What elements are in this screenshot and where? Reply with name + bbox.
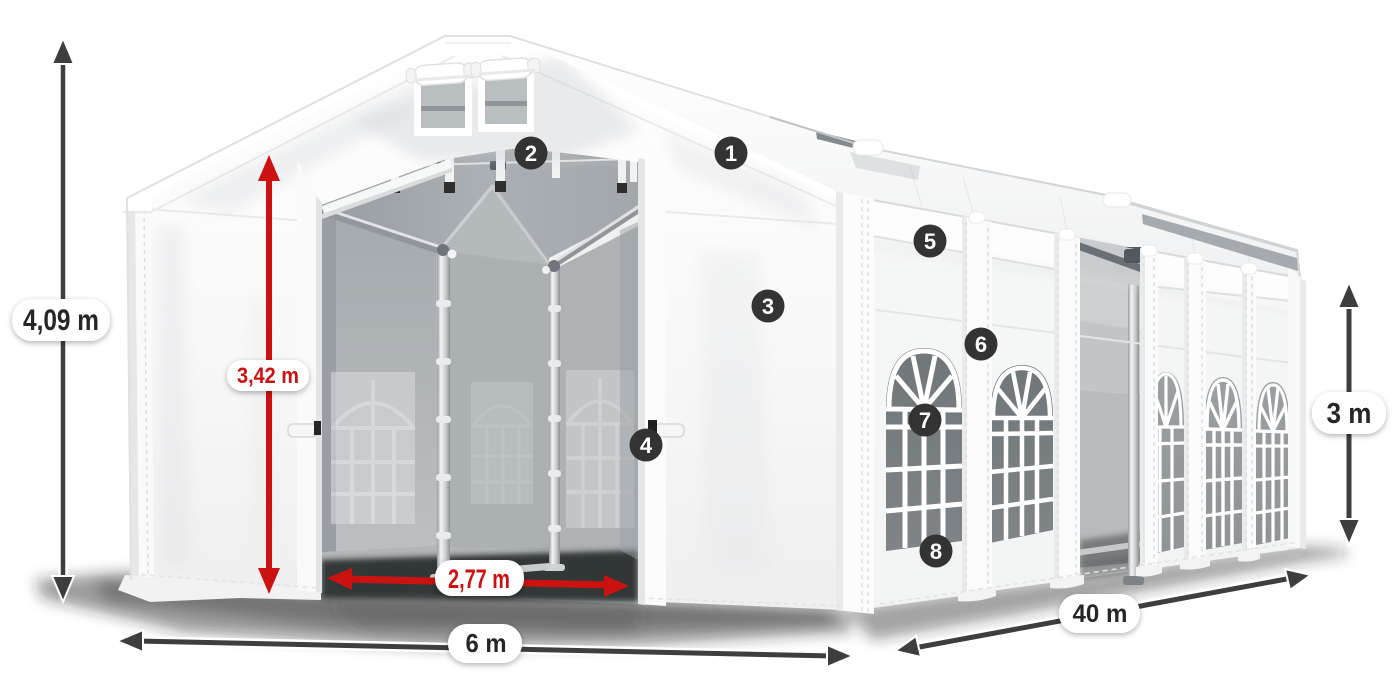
svg-text:6 m: 6 m xyxy=(466,628,507,658)
svg-text:3 m: 3 m xyxy=(1327,398,1372,430)
svg-text:8: 8 xyxy=(930,539,942,564)
svg-text:3: 3 xyxy=(762,294,774,319)
svg-text:7: 7 xyxy=(919,408,931,433)
svg-text:1: 1 xyxy=(725,141,737,166)
svg-text:2: 2 xyxy=(525,141,537,166)
svg-text:5: 5 xyxy=(924,229,936,254)
svg-text:4: 4 xyxy=(640,433,653,458)
svg-text:4,09 m: 4,09 m xyxy=(23,304,99,337)
svg-text:3,42 m: 3,42 m xyxy=(237,363,299,388)
svg-text:2,77 m: 2,77 m xyxy=(448,564,510,594)
svg-text:6: 6 xyxy=(975,332,987,357)
svg-text:40 m: 40 m xyxy=(1073,600,1128,628)
